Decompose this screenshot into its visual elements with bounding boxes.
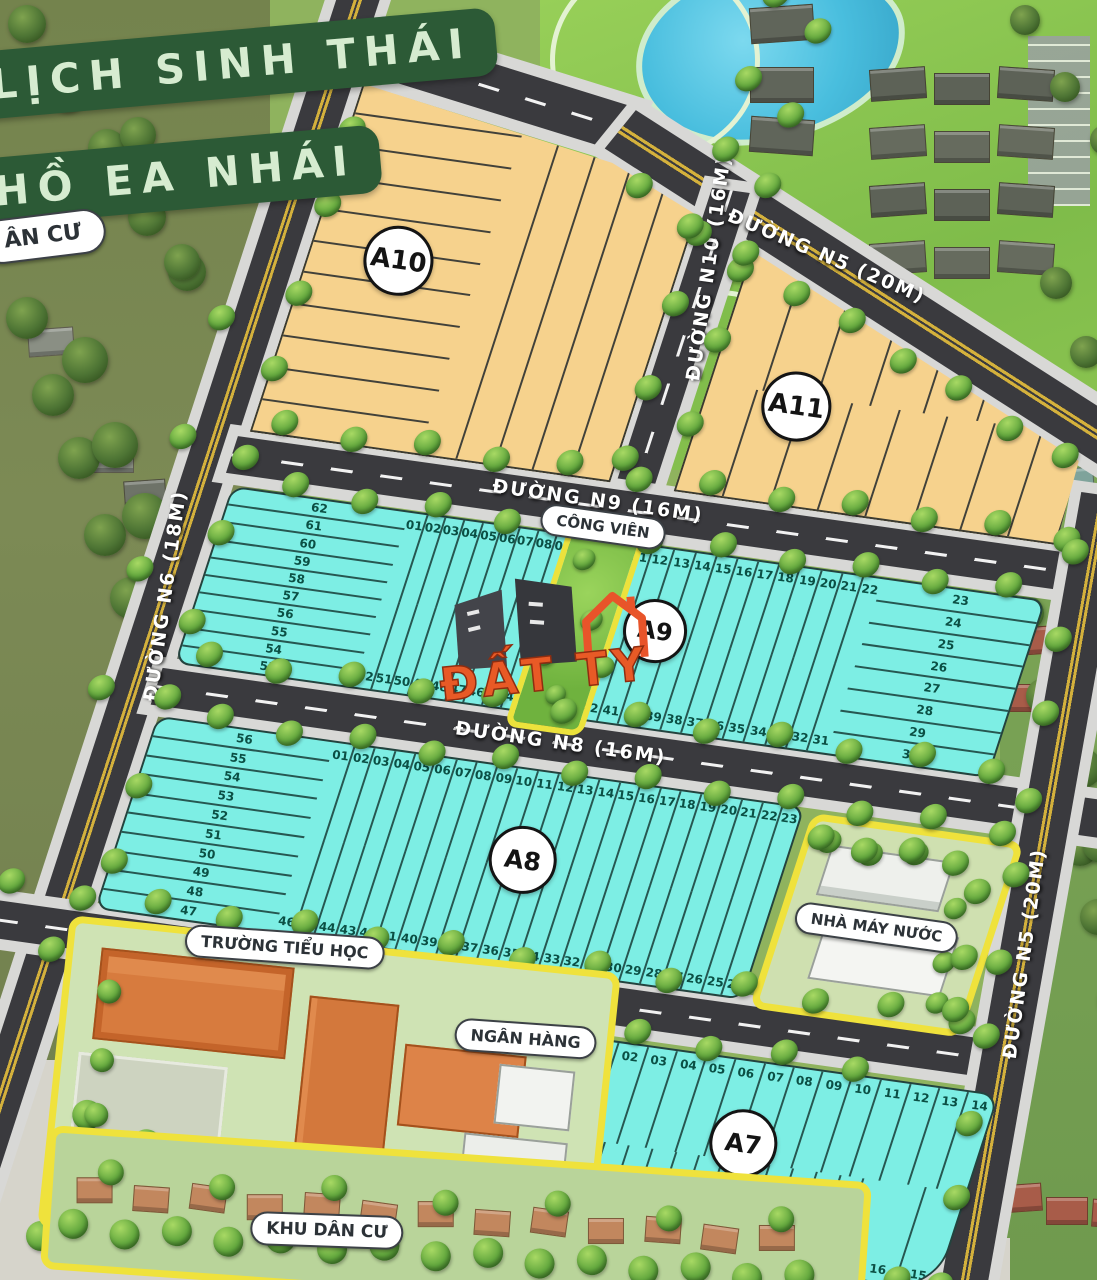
tree-icon (731, 1262, 763, 1280)
bank-building (494, 1064, 576, 1132)
tree-icon (524, 1247, 556, 1279)
tree-icon (161, 1215, 193, 1247)
tree-icon (432, 1189, 460, 1217)
house-icon (132, 1185, 170, 1213)
tree-icon (576, 1244, 608, 1276)
tree-icon (208, 1173, 236, 1201)
datty-logo: ĐẤT TY (421, 555, 685, 730)
tree-icon (122, 493, 168, 539)
house-icon (934, 247, 990, 279)
tree-icon (6, 297, 48, 339)
tree-icon (627, 1255, 659, 1280)
tree-icon (1080, 899, 1097, 935)
masterplan-map: ĐƯỜNG N9 (16M) ĐƯỜNG N8 (16M) ĐƯỜNG N7 (… (0, 0, 1097, 1280)
house-icon (869, 182, 927, 218)
house-icon (700, 1224, 739, 1255)
house-icon (934, 73, 990, 105)
house-icon (997, 182, 1055, 218)
tree-icon (320, 1174, 348, 1202)
tree-icon (92, 422, 138, 468)
tree-icon (57, 1208, 89, 1240)
water-plant-building (816, 845, 955, 912)
house-icon (997, 66, 1055, 102)
tree-icon (212, 1226, 244, 1258)
house-icon (869, 124, 927, 160)
house-icon (934, 189, 990, 221)
parking-lot (1028, 36, 1090, 206)
tree-icon (1070, 336, 1097, 368)
tree-icon (62, 337, 108, 383)
tree-icon (783, 1259, 815, 1280)
tree-icon (1090, 125, 1097, 155)
tree-icon (680, 1251, 712, 1280)
house-icon (934, 131, 990, 163)
tree-icon (97, 1158, 125, 1186)
school-building (92, 947, 295, 1059)
house-icon (869, 66, 927, 102)
house-icon (999, 1183, 1043, 1214)
house-icon (588, 1218, 624, 1244)
tree-icon (32, 374, 74, 416)
tree-icon (1010, 5, 1040, 35)
tree-icon (472, 1237, 504, 1269)
house-icon (1046, 1197, 1088, 1225)
house-icon (1091, 1199, 1097, 1230)
tree-icon (84, 514, 126, 556)
house-icon (473, 1209, 511, 1237)
school-building (294, 996, 400, 1159)
house-icon (997, 124, 1055, 160)
tree-icon (109, 1218, 141, 1250)
residential-bottom-label: KHU DÂN CƯ (250, 1211, 404, 1250)
tree-icon (1050, 72, 1080, 102)
tree-icon (8, 5, 46, 43)
tree-icon (420, 1240, 452, 1272)
tree-icon (1040, 267, 1072, 299)
tree-icon (164, 244, 200, 280)
